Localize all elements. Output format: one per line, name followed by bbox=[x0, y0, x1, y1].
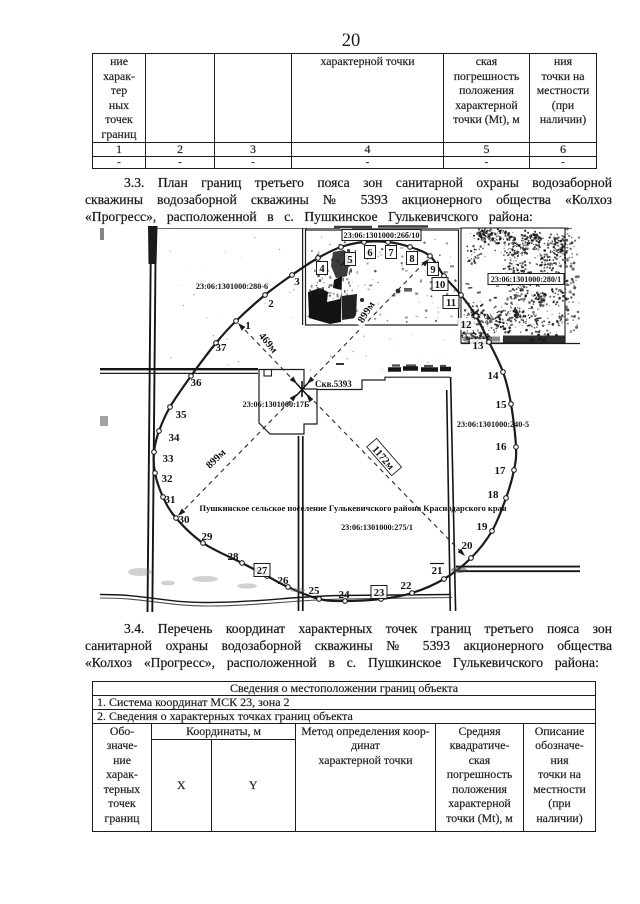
svg-text:36: 36 bbox=[191, 377, 203, 389]
svg-text:23:06:1301000:240-5: 23:06:1301000:240-5 bbox=[457, 420, 529, 429]
svg-text:15: 15 bbox=[496, 399, 508, 411]
svg-text:25: 25 bbox=[309, 585, 321, 597]
svg-text:35: 35 bbox=[176, 409, 188, 421]
svg-text:12: 12 bbox=[461, 319, 473, 331]
svg-text:7: 7 bbox=[388, 248, 393, 259]
svg-text:9: 9 bbox=[430, 265, 435, 276]
svg-text:14: 14 bbox=[488, 370, 500, 382]
svg-text:27: 27 bbox=[257, 566, 268, 577]
svg-text:20: 20 bbox=[462, 540, 474, 552]
svg-text:3: 3 bbox=[294, 276, 300, 288]
svg-text:11: 11 bbox=[446, 298, 456, 309]
svg-text:22: 22 bbox=[401, 580, 413, 592]
svg-text:23:06:1301000:17Б: 23:06:1301000:17Б bbox=[243, 400, 310, 409]
svg-text:23:06:1301000:275/1: 23:06:1301000:275/1 bbox=[341, 523, 413, 532]
svg-text:19: 19 bbox=[477, 521, 489, 533]
svg-text:16: 16 bbox=[496, 441, 508, 453]
svg-text:23:06:1301000:280-6: 23:06:1301000:280-6 bbox=[196, 282, 268, 291]
svg-text:33: 33 bbox=[163, 453, 175, 465]
svg-text:13: 13 bbox=[473, 340, 485, 352]
svg-text:26: 26 bbox=[278, 575, 290, 587]
svg-text:31: 31 bbox=[165, 494, 176, 506]
svg-text:6: 6 bbox=[367, 248, 372, 259]
svg-text:23:06:1301000:26б/10: 23:06:1301000:26б/10 bbox=[344, 231, 420, 240]
svg-text:23:06:1301000:280/1: 23:06:1301000:280/1 bbox=[491, 275, 561, 284]
svg-text:5: 5 bbox=[347, 255, 352, 266]
svg-text:28: 28 bbox=[228, 551, 240, 563]
svg-text:1: 1 bbox=[245, 320, 251, 332]
svg-text:32: 32 bbox=[162, 473, 174, 485]
svg-text:17: 17 bbox=[495, 465, 507, 477]
svg-text:24: 24 bbox=[339, 589, 351, 601]
svg-text:8: 8 bbox=[409, 254, 414, 265]
svg-text:18: 18 bbox=[488, 489, 500, 501]
svg-text:899м: 899м bbox=[204, 447, 228, 471]
svg-text:37: 37 bbox=[216, 342, 228, 354]
svg-text:469м: 469м bbox=[256, 331, 279, 356]
svg-text:29: 29 bbox=[202, 531, 214, 543]
svg-text:34: 34 bbox=[169, 432, 181, 444]
svg-text:4: 4 bbox=[319, 264, 325, 275]
svg-text:2: 2 bbox=[268, 298, 274, 310]
svg-text:10: 10 bbox=[435, 280, 446, 291]
svg-text:21: 21 bbox=[432, 565, 443, 577]
svg-text:Пушкинское сельское поселение: Пушкинское сельское поселение Гулькевичс… bbox=[199, 503, 507, 513]
svg-text:30: 30 bbox=[179, 514, 191, 526]
svg-text:Скв.5393: Скв.5393 bbox=[315, 379, 352, 389]
svg-text:23: 23 bbox=[374, 588, 385, 599]
